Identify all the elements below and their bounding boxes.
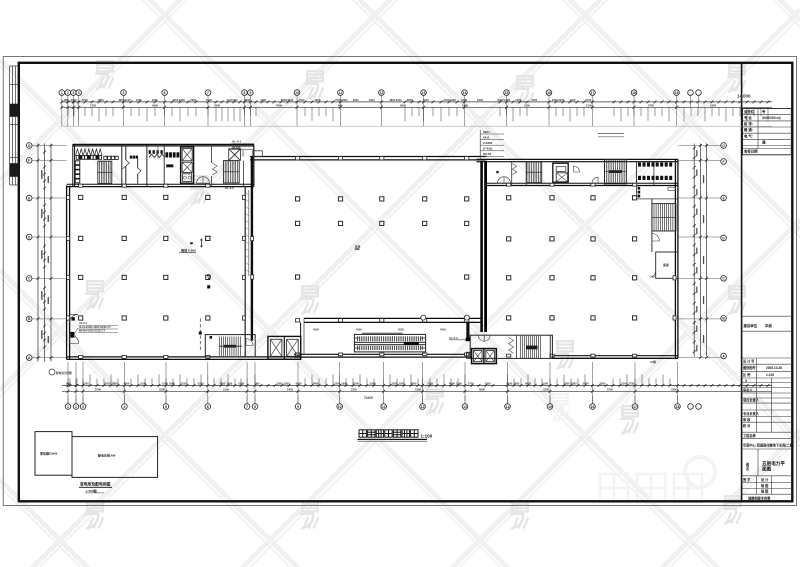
svg-text:8: 8 (244, 91, 246, 95)
svg-text:1800: 1800 (314, 98, 320, 102)
svg-text:900: 900 (255, 381, 260, 385)
svg-text:7: 7 (246, 405, 248, 409)
svg-text:3: 3 (82, 405, 84, 409)
svg-text:10: 10 (295, 91, 299, 95)
svg-text:2100: 2100 (396, 98, 402, 102)
svg-text:12: 12 (421, 405, 425, 409)
svg-text:19: 19 (675, 91, 679, 95)
svg-text:1#梯: 1#梯 (650, 360, 656, 364)
svg-text:4500: 4500 (440, 328, 446, 332)
svg-text:6900: 6900 (296, 381, 302, 385)
svg-text:6: 6 (164, 91, 166, 95)
svg-text:2700: 2700 (90, 104, 96, 108)
svg-text:1500: 1500 (136, 98, 142, 102)
svg-text:18: 18 (632, 91, 636, 95)
svg-text:4500: 4500 (313, 328, 319, 332)
svg-text:1800: 1800 (710, 104, 716, 108)
svg-text:4500: 4500 (398, 328, 404, 332)
svg-text:11: 11 (339, 91, 343, 95)
svg-text:1200: 1200 (369, 98, 375, 102)
svg-text:16: 16 (591, 405, 595, 409)
svg-text:1: 1 (67, 405, 69, 409)
svg-text:专业负责人: 专业负责人 (743, 411, 760, 416)
svg-text:18: 18 (676, 405, 680, 409)
svg-text:3300: 3300 (370, 381, 376, 385)
svg-text:5: 5 (123, 91, 125, 95)
svg-text:2: 2 (75, 405, 77, 409)
svg-text:名: 名 (746, 466, 749, 471)
svg-text:7500: 7500 (353, 381, 359, 385)
svg-text:3300: 3300 (277, 381, 283, 385)
svg-text:7800: 7800 (219, 381, 225, 385)
svg-text:商场: 商场 (355, 245, 361, 249)
svg-text:暖 通:: 暖 通: (744, 127, 753, 132)
svg-text:3300: 3300 (214, 104, 220, 108)
svg-text:2100: 2100 (427, 381, 433, 385)
svg-text:7: 7 (207, 91, 209, 95)
svg-text:1:100: 1:100 (766, 373, 774, 377)
svg-text:变电所及配电间图: 变电所及配电间图 (80, 482, 111, 487)
svg-text:配电负荷:kW: 配电负荷:kW (98, 453, 116, 458)
svg-text:G: G (28, 144, 31, 148)
svg-text:74100: 74100 (364, 396, 373, 400)
svg-text:3: 3 (72, 91, 74, 95)
svg-text:1800: 1800 (513, 381, 519, 385)
svg-text:6364: 6364 (483, 130, 490, 134)
svg-text:1500: 1500 (456, 381, 462, 385)
svg-text:签 字: 签 字 (742, 477, 751, 482)
svg-text:2400: 2400 (506, 381, 512, 385)
svg-text:6: 6 (207, 405, 209, 409)
svg-text:2100: 2100 (238, 381, 244, 385)
svg-text:1500: 1500 (415, 387, 421, 391)
svg-text:1200: 1200 (399, 381, 405, 385)
svg-text:3300: 3300 (543, 387, 549, 391)
svg-text:2400: 2400 (583, 381, 589, 385)
svg-text:5700: 5700 (82, 98, 88, 102)
svg-text:设 计 号: 设 计 号 (743, 359, 755, 364)
svg-text:F: F (723, 160, 725, 164)
svg-text:1:100图: 1:100图 (86, 488, 97, 493)
svg-text:校 对: 校 对 (743, 423, 751, 428)
svg-text:1800: 1800 (341, 381, 347, 385)
svg-text:AL-5-3: AL-5-3 (449, 336, 458, 340)
svg-text:2700: 2700 (628, 381, 634, 385)
svg-text:5700: 5700 (607, 387, 613, 391)
svg-text:2100: 2100 (504, 98, 510, 102)
svg-text:900: 900 (64, 98, 69, 102)
svg-text:1200: 1200 (284, 381, 290, 385)
svg-text:15: 15 (505, 91, 509, 95)
svg-text:300X300 m): 300X300 m) (762, 116, 781, 120)
svg-text:17: 17 (633, 405, 637, 409)
svg-text:2100: 2100 (586, 104, 592, 108)
svg-text:3300: 3300 (450, 98, 456, 102)
svg-text:3300: 3300 (342, 98, 348, 102)
svg-text:工程名称: 工程名称 (743, 433, 757, 438)
svg-text:商场 5.000: 商场 5.000 (181, 247, 196, 252)
svg-text:2250: 2250 (353, 98, 359, 102)
svg-text:面图: 面图 (762, 466, 772, 473)
svg-text:8: 8 (254, 405, 256, 409)
svg-text:1200: 1200 (260, 98, 266, 102)
svg-text:9: 9 (249, 91, 251, 95)
svg-text:AL-5-1: AL-5-1 (232, 140, 242, 144)
svg-text:2008.10.28: 2008.10.28 (766, 366, 782, 370)
svg-text:6900: 6900 (525, 381, 531, 385)
svg-text:给 排:: 给 排: (744, 121, 753, 126)
svg-text:配电间大样图: 配电间大样图 (56, 371, 72, 375)
svg-text:15: 15 (548, 405, 552, 409)
svg-text:4500: 4500 (356, 328, 362, 332)
svg-text:F: F (28, 159, 30, 163)
svg-text:2250: 2250 (198, 381, 204, 385)
svg-text:5700: 5700 (95, 387, 101, 391)
svg-text:6900: 6900 (400, 104, 406, 108)
svg-text:4: 4 (123, 405, 125, 409)
svg-text:华润: 华润 (765, 323, 772, 328)
svg-text:会签日期: 会签日期 (744, 148, 758, 153)
svg-text:9: 9 (297, 405, 299, 409)
svg-text:3300: 3300 (159, 387, 165, 391)
svg-text:16: 16 (547, 91, 551, 95)
svg-text:1500: 1500 (299, 98, 305, 102)
svg-text:1800: 1800 (112, 381, 118, 385)
svg-text:4L41-4X35+1X25 SC50 CT: 4L41-4X35+1X25 SC50 CT (79, 325, 111, 329)
svg-text:4800: 4800 (152, 104, 158, 108)
svg-text:6900: 6900 (281, 98, 287, 102)
svg-text:2400: 2400 (461, 98, 467, 102)
svg-text:2250: 2250 (392, 381, 398, 385)
svg-text:2N-54: 2N-54 (483, 152, 492, 156)
svg-text:3300: 3300 (169, 381, 175, 385)
svg-text:6411: 6411 (483, 135, 490, 139)
svg-text:900: 900 (233, 98, 238, 102)
svg-text:AL-5-2: AL-5-2 (225, 186, 235, 190)
svg-text:10: 10 (338, 405, 342, 409)
svg-text:图别图号: 图别图号 (743, 365, 757, 370)
svg-text:项目负责人: 项目负责人 (743, 398, 760, 403)
svg-text:14: 14 (506, 405, 510, 409)
svg-text:4800: 4800 (410, 381, 416, 385)
svg-text:13: 13 (463, 405, 467, 409)
svg-text:7800: 7800 (190, 98, 196, 102)
svg-text:7200: 7200 (531, 98, 537, 102)
svg-text:1500: 1500 (162, 381, 168, 385)
svg-text:通:: 通: (762, 140, 767, 145)
svg-text:13: 13 (422, 91, 426, 95)
svg-text:2250: 2250 (351, 387, 357, 391)
svg-text:2700: 2700 (71, 98, 77, 102)
svg-text:1500: 1500 (564, 381, 570, 385)
svg-text:7200: 7200 (571, 381, 577, 385)
svg-text:(7-42)L: (7-42)L (483, 147, 493, 151)
svg-text:5: 5 (165, 405, 167, 409)
svg-text:2100: 2100 (542, 381, 548, 385)
svg-text:5700: 5700 (105, 381, 111, 385)
svg-text:17: 17 (591, 91, 595, 95)
svg-text:2100: 2100 (140, 381, 146, 385)
svg-text:1800: 1800 (477, 98, 483, 102)
svg-text:AL-5-1: AL-5-1 (79, 321, 88, 325)
svg-text:6600: 6600 (449, 381, 455, 385)
svg-text:2700: 2700 (83, 381, 89, 385)
svg-text:G: G (722, 144, 725, 148)
svg-text:1200: 1200 (570, 98, 576, 102)
svg-text:1800: 1800 (462, 104, 468, 108)
svg-text:14.000: 14.000 (737, 94, 751, 99)
svg-text:1800: 1800 (98, 98, 104, 102)
svg-text:比 例: 比 例 (743, 372, 751, 377)
svg-text:会签栏: 会签栏 (744, 109, 755, 114)
svg-text:6600: 6600 (407, 98, 413, 102)
svg-text:3300: 3300 (558, 98, 564, 102)
svg-text:1200: 1200 (621, 381, 627, 385)
svg-text:描 图: 描 图 (761, 489, 768, 494)
svg-text:1500: 1500 (515, 98, 521, 102)
svg-text:900: 900 (338, 104, 343, 108)
svg-text:3300: 3300 (244, 98, 250, 102)
svg-text:1500: 1500 (423, 98, 429, 102)
svg-text:12: 12 (380, 91, 384, 95)
svg-text:2400: 2400 (287, 98, 293, 102)
svg-text:3300: 3300 (599, 381, 605, 385)
svg-text:建设单位: 建设单位 (744, 323, 758, 328)
svg-text:2700: 2700 (468, 381, 474, 385)
svg-text:14: 14 (463, 91, 467, 95)
svg-text:1:100: 1:100 (421, 434, 433, 439)
svg-text:2250: 2250 (181, 381, 187, 385)
svg-text:1500: 1500 (206, 98, 212, 102)
svg-text:6900: 6900 (479, 387, 485, 391)
svg-text:7500: 7500 (335, 98, 341, 102)
svg-text:900: 900 (66, 381, 71, 385)
svg-text:2100: 2100 (223, 387, 229, 391)
svg-text:城建档案专用章: 城建档案专用章 (748, 495, 771, 500)
svg-text:2700: 2700 (585, 98, 591, 102)
svg-text:1: 1 (61, 91, 63, 95)
svg-text:库房: 库房 (662, 262, 669, 267)
svg-text:2100: 2100 (125, 98, 131, 102)
svg-text:2250: 2250 (179, 98, 185, 102)
svg-text:N4-BV-5X10 SC32 CT: N4-BV-5X10 SC32 CT (79, 329, 105, 333)
svg-text:11: 11 (382, 405, 386, 409)
svg-text:审 核: 审 核 (743, 417, 751, 422)
svg-text:制 图: 制 图 (761, 483, 768, 488)
svg-text:专 业: 专 业 (744, 115, 752, 120)
svg-text:审定人: 审定人 (743, 388, 753, 393)
svg-text:设 计: 设 计 (761, 477, 769, 482)
svg-text:2700: 2700 (648, 104, 654, 108)
svg-text:2: 2 (67, 91, 69, 95)
svg-text:电 气:: 电 气: (744, 133, 753, 138)
svg-text:2400: 2400 (312, 381, 318, 385)
svg-text:变压器(1)kW: 变压器(1)kW (40, 451, 57, 456)
svg-text:2-4826: 2-4826 (483, 141, 493, 145)
svg-text:2400: 2400 (287, 387, 293, 391)
svg-text:1500: 1500 (226, 381, 232, 385)
svg-text:1500: 1500 (334, 381, 340, 385)
svg-text:7800: 7800 (276, 104, 282, 108)
svg-text:华润中心 润城商住楼地下车库(二期): 华润中心 润城商住楼地下车库(二期) (743, 443, 794, 448)
svg-text:3300: 3300 (152, 98, 158, 102)
svg-text:2400: 2400 (552, 98, 558, 102)
svg-text:6#100: 6#100 (232, 145, 241, 149)
svg-text:4: 4 (78, 91, 80, 95)
svg-text:4800: 4800 (123, 381, 129, 385)
svg-text:3300: 3300 (485, 381, 491, 385)
svg-text:3300: 3300 (671, 387, 677, 391)
svg-text:2250: 2250 (524, 104, 530, 108)
